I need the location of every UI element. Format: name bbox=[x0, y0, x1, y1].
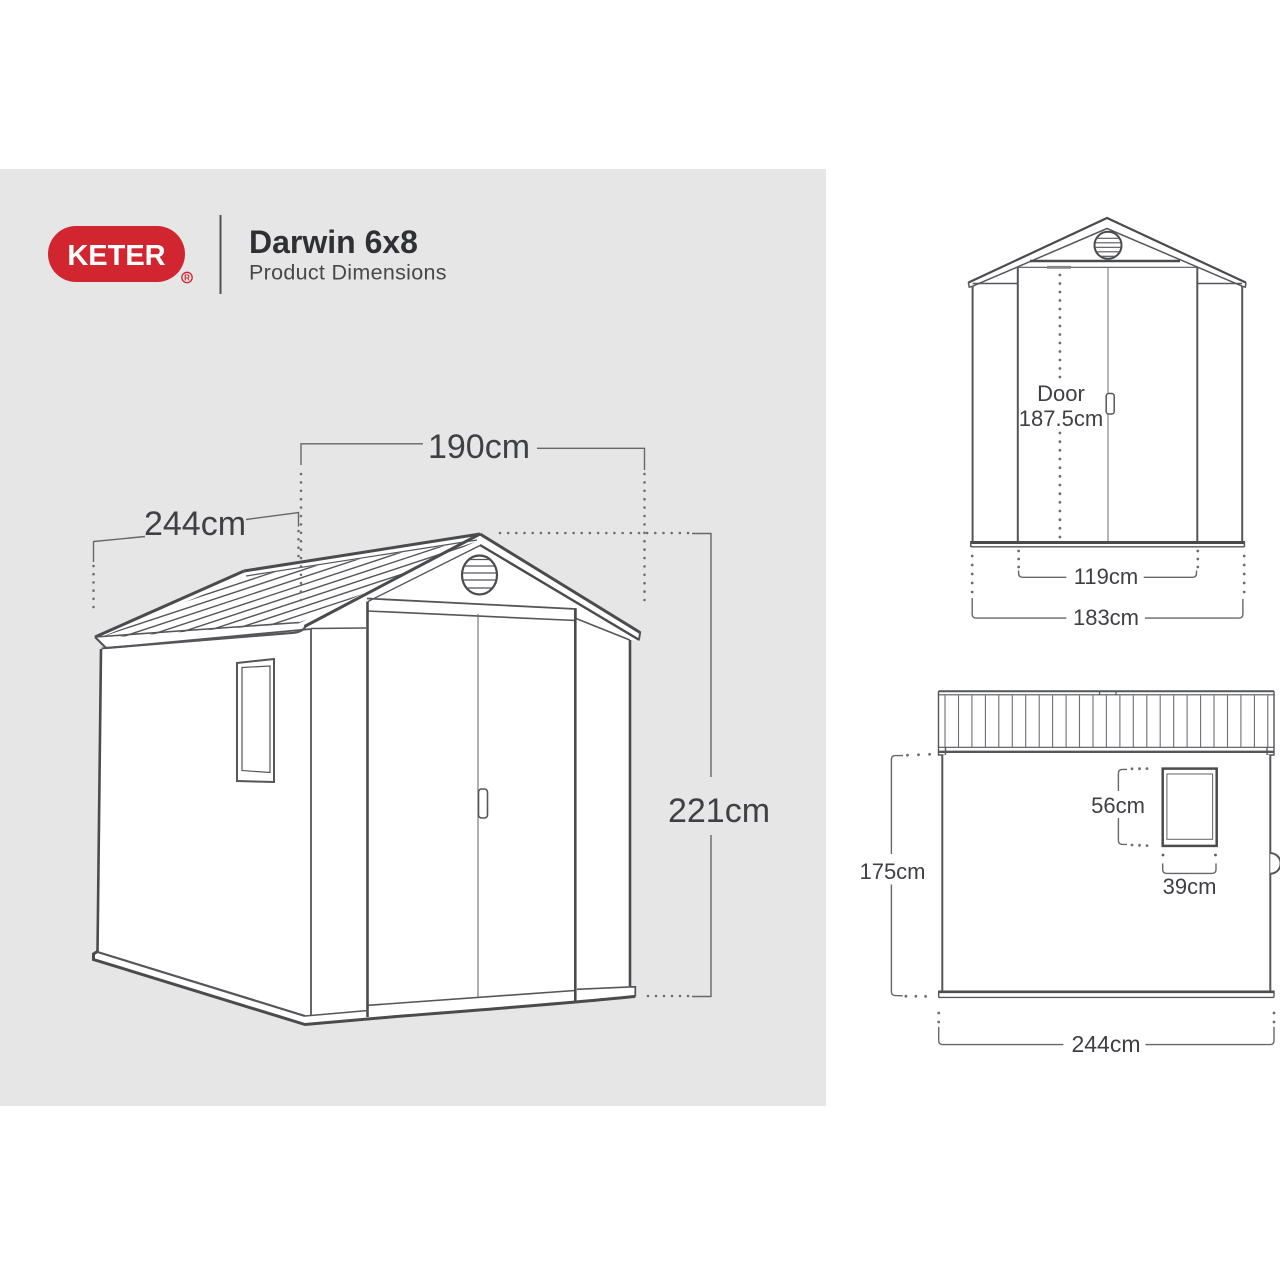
svg-text:R: R bbox=[184, 274, 190, 283]
svg-text:56cm: 56cm bbox=[1091, 793, 1145, 818]
svg-text:190cm: 190cm bbox=[428, 428, 530, 466]
svg-text:Door: Door bbox=[1037, 381, 1085, 406]
svg-text:175cm: 175cm bbox=[859, 859, 925, 884]
svg-text:221cm: 221cm bbox=[668, 792, 770, 830]
svg-text:39cm: 39cm bbox=[1163, 874, 1217, 899]
svg-text:187.5cm: 187.5cm bbox=[1019, 406, 1103, 431]
svg-text:KETER: KETER bbox=[67, 240, 165, 272]
svg-text:Product Dimensions: Product Dimensions bbox=[249, 261, 447, 285]
svg-text:119cm: 119cm bbox=[1074, 564, 1138, 589]
svg-text:Darwin 6x8: Darwin 6x8 bbox=[249, 224, 418, 260]
svg-text:244cm: 244cm bbox=[1071, 1031, 1140, 1057]
svg-text:244cm: 244cm bbox=[144, 505, 246, 543]
svg-text:183cm: 183cm bbox=[1073, 605, 1139, 630]
